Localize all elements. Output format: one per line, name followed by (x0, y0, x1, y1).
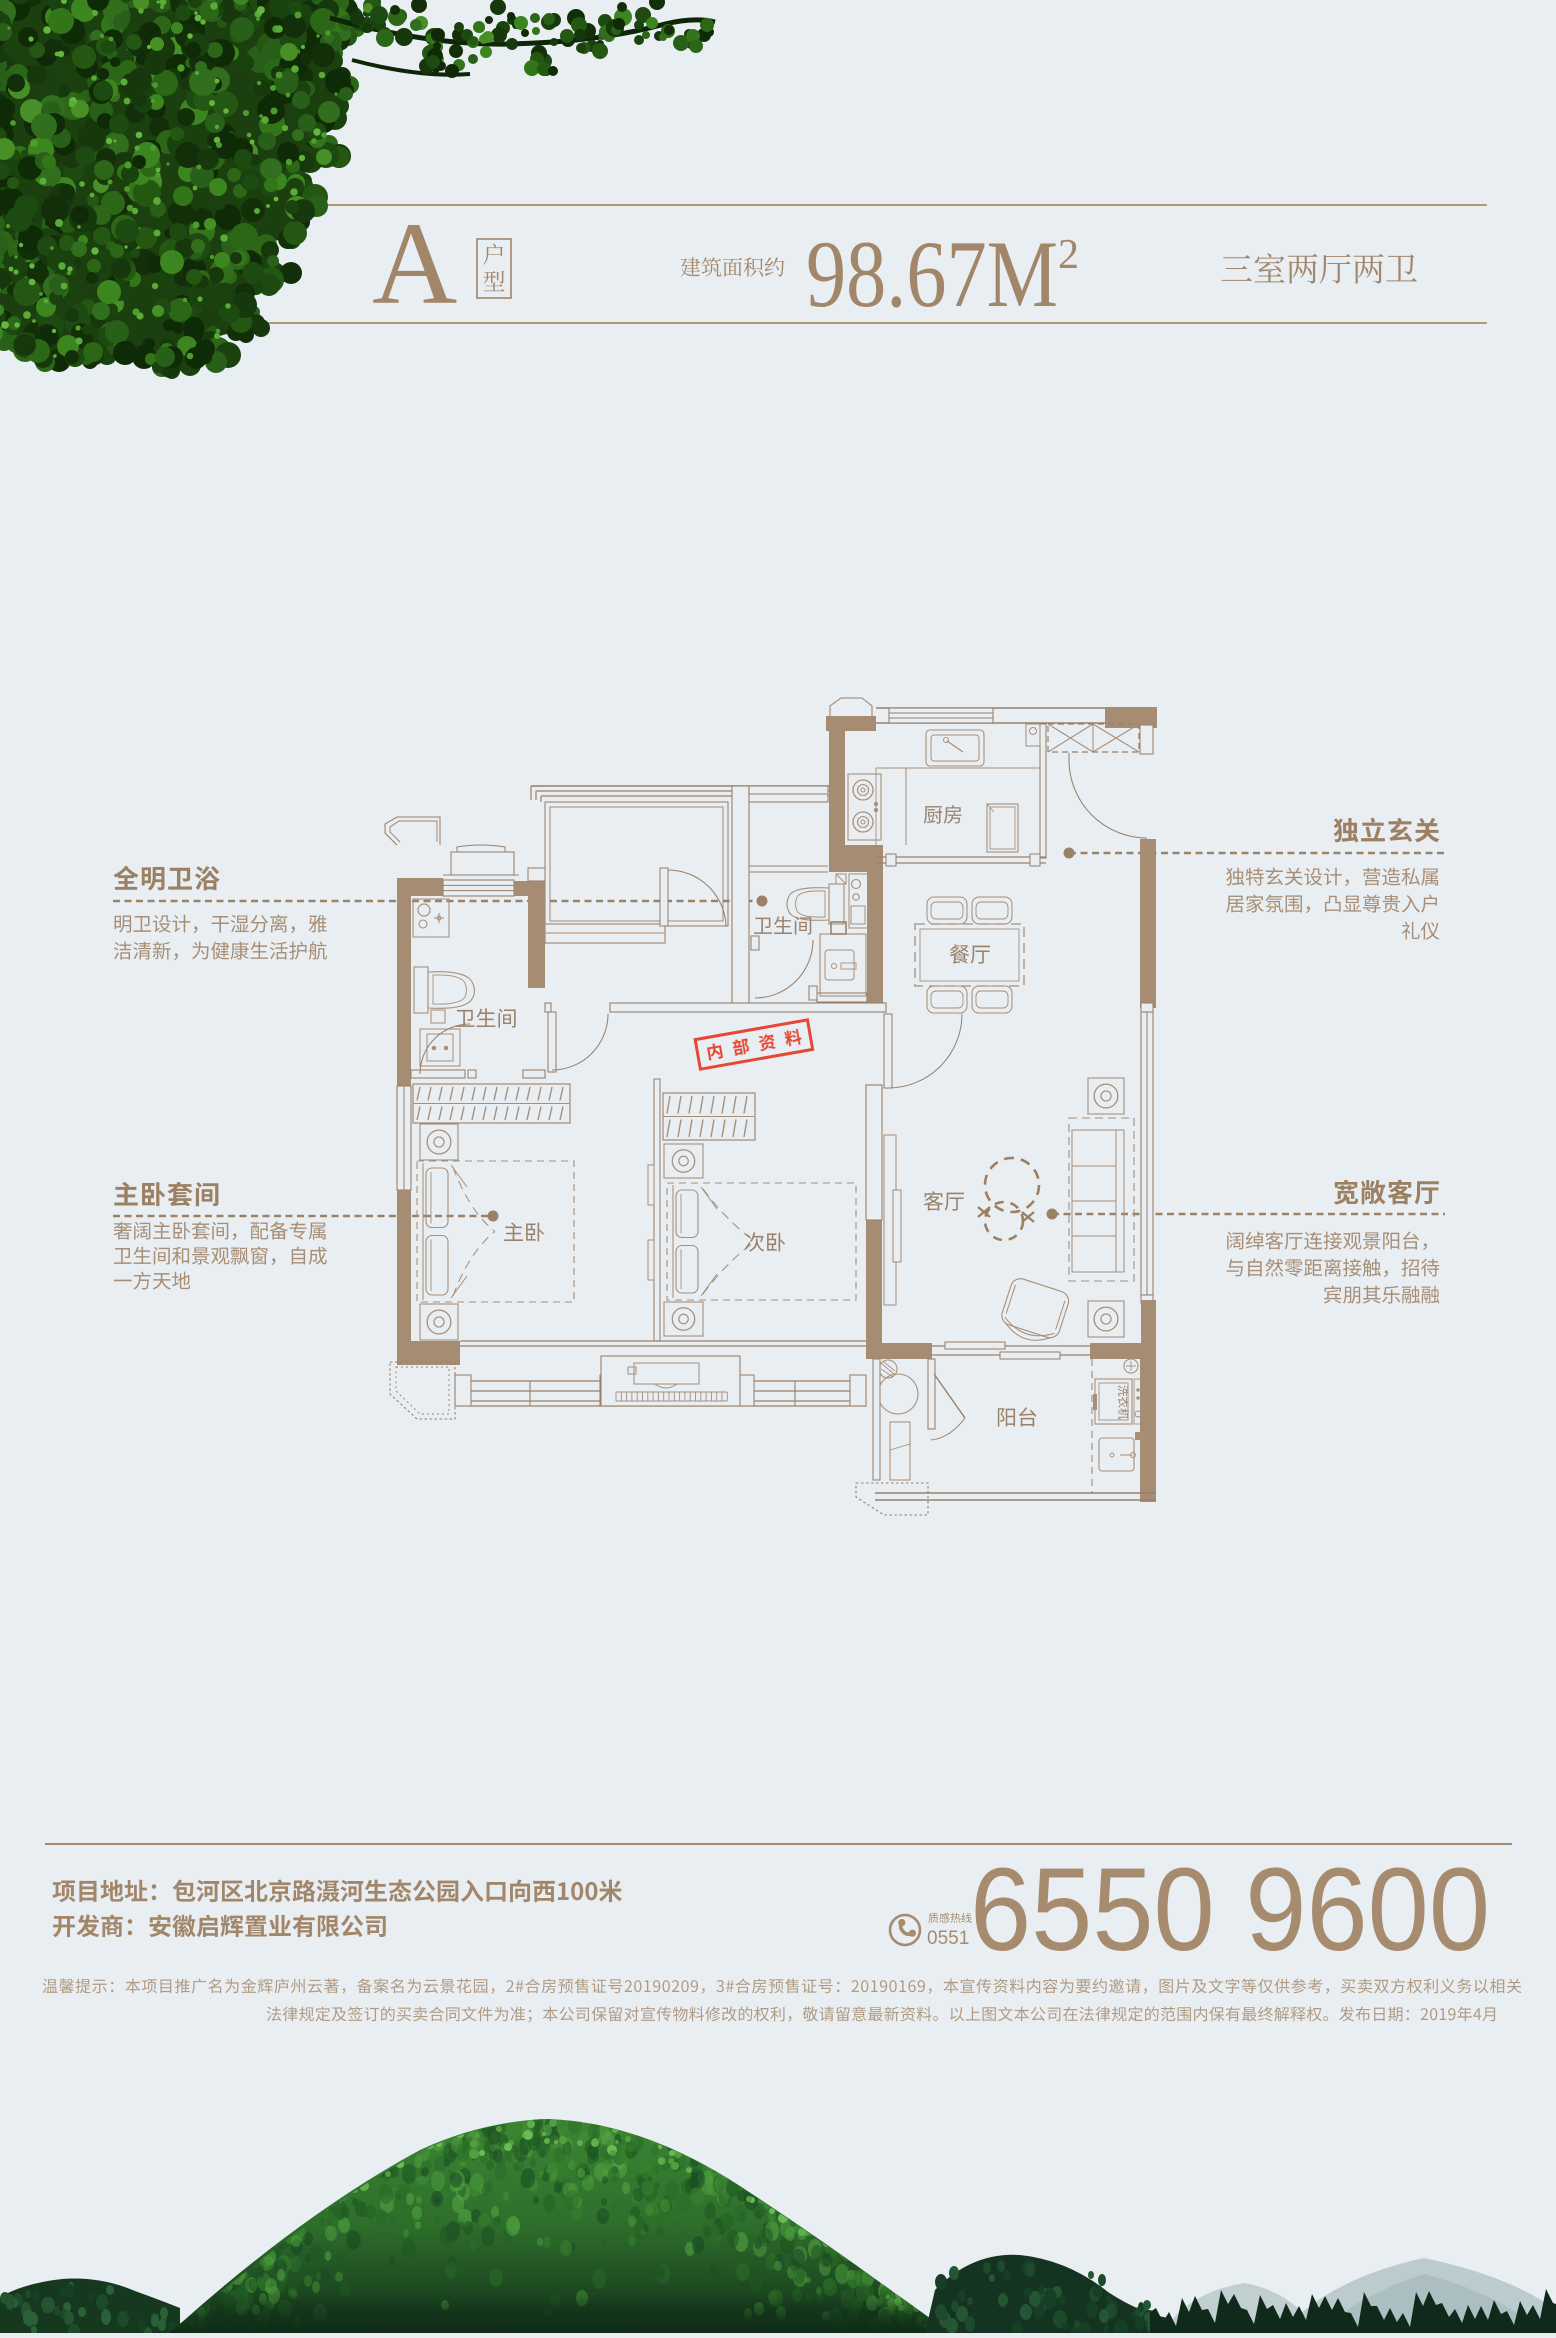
svg-text:6550 9600: 6550 9600 (970, 1844, 1490, 1976)
svg-text:2: 2 (1058, 232, 1079, 278)
svg-text:98.67M: 98.67M (806, 221, 1058, 327)
svg-text:A: A (372, 198, 457, 329)
svg-text:0551: 0551 (927, 1928, 969, 1949)
